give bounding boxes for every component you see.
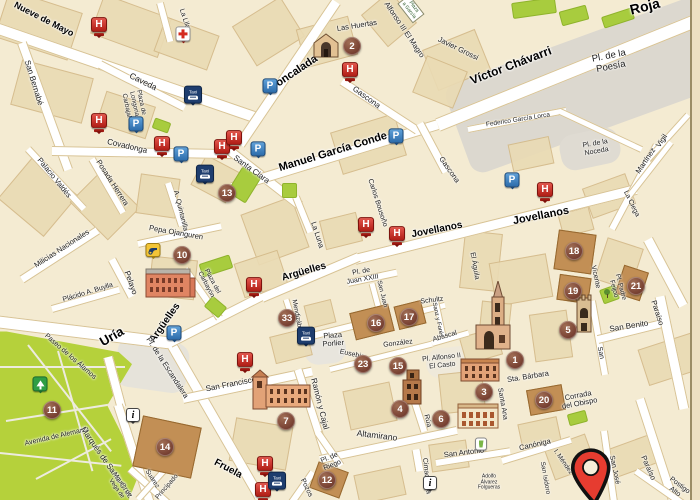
taxi-stand-marker-box: Taxi xyxy=(268,472,286,490)
hotel-marker[interactable]: H xyxy=(91,17,107,41)
poi-marker-1[interactable]: 1 xyxy=(506,351,524,369)
parking-marker[interactable]: P xyxy=(505,172,520,192)
hotel-marker[interactable]: H xyxy=(389,226,405,250)
poi-marker-12[interactable]: 12 xyxy=(318,471,336,489)
cider-glass-icon-box xyxy=(475,437,487,450)
glass-shape xyxy=(479,440,484,447)
parking-marker[interactable]: P xyxy=(167,325,182,345)
poi-marker-7[interactable]: 7 xyxy=(277,412,295,430)
parking-marker[interactable]: P xyxy=(263,78,278,98)
marker-pointer xyxy=(37,390,43,396)
parking-marker-box: P xyxy=(129,116,144,131)
street-label: Corrada del Obispo xyxy=(560,388,598,411)
building-block xyxy=(304,299,337,329)
info-point-icon-box: i xyxy=(126,408,140,422)
poi-marker-19[interactable]: 19 xyxy=(564,282,582,300)
park-path xyxy=(6,400,130,422)
street-label: Rúa xyxy=(422,414,433,428)
green-area xyxy=(282,183,297,198)
hotel-marker-box: H xyxy=(358,217,374,232)
hotel-marker-box: H xyxy=(226,130,242,145)
marker-pointer xyxy=(242,370,248,376)
poi-marker-23[interactable]: 23 xyxy=(354,355,372,373)
marker-pointer xyxy=(542,200,548,206)
taxi-stand-marker[interactable]: Taxi xyxy=(196,165,214,188)
hotel-marker[interactable]: H xyxy=(342,62,358,86)
taxi-label: Taxi xyxy=(201,169,209,174)
green-area xyxy=(152,117,172,133)
marker-pointer xyxy=(159,154,165,160)
marker-pointer xyxy=(150,256,156,262)
city-map: Nueve de MayoSan BernabéLa LilaCavedaPla… xyxy=(0,0,700,500)
taxi-label: Taxi xyxy=(273,476,281,481)
marker-pointer xyxy=(171,339,177,345)
marker-pointer xyxy=(267,92,273,98)
parking-marker-box: P xyxy=(174,146,189,161)
monastery-illustration xyxy=(249,369,313,418)
park-icon-box xyxy=(33,376,48,391)
tree-icon xyxy=(36,376,44,386)
poi-marker-14[interactable]: 14 xyxy=(156,438,174,456)
poi-marker-13[interactable]: 13 xyxy=(218,184,236,202)
poi-marker-18[interactable]: 18 xyxy=(565,242,583,260)
marker-pointer xyxy=(219,157,225,163)
car-icon xyxy=(188,96,198,100)
car-icon xyxy=(200,175,210,179)
parking-marker-box: P xyxy=(251,141,266,156)
street-label: Adolfo Álvarez Folgueras xyxy=(478,475,500,492)
poi-marker-5[interactable]: 5 xyxy=(559,321,577,339)
marker-pointer xyxy=(190,103,196,109)
marker-pointer xyxy=(251,295,257,301)
you-are-here-pin[interactable] xyxy=(566,446,618,500)
hotel-marker-box: H xyxy=(91,17,107,32)
hotel-marker[interactable]: H xyxy=(91,113,107,137)
poi-marker-20[interactable]: 20 xyxy=(535,391,553,409)
hotel-marker[interactable]: H xyxy=(246,277,262,301)
hotel-marker[interactable]: H xyxy=(358,217,374,241)
post-office-icon-box xyxy=(146,243,161,257)
taxi-stand-marker[interactable]: Taxi xyxy=(184,86,202,109)
taxi-stand-marker-box: Taxi xyxy=(297,327,315,345)
hotel-marker[interactable]: H xyxy=(537,182,553,206)
marker-pointer xyxy=(133,130,139,136)
palace-cream-illustration xyxy=(456,401,500,436)
parking-marker-box: P xyxy=(263,78,278,93)
marker-pointer xyxy=(274,489,280,495)
street-label: Plaza Porlier xyxy=(322,331,345,349)
hotel-marker-box: H xyxy=(342,62,358,77)
poi-marker-10[interactable]: 10 xyxy=(173,246,191,264)
hotel-marker-box: H xyxy=(257,456,273,471)
taxi-stand-marker-box: Taxi xyxy=(184,86,202,104)
street-label: Sta. Bárbara xyxy=(507,370,550,385)
green-area xyxy=(567,410,588,427)
green-area xyxy=(559,5,590,27)
marker-pointer xyxy=(393,142,399,148)
foncalada-fountain-illustration xyxy=(310,32,342,65)
marker-pointer xyxy=(509,186,515,192)
marker-pointer xyxy=(96,35,102,41)
hotel-marker-box: H xyxy=(537,182,553,197)
hotel-marker-box: H xyxy=(389,226,405,241)
hotel-marker-box: H xyxy=(246,277,262,292)
taxi-stand-marker[interactable]: Taxi xyxy=(268,472,286,495)
taxi-label: Taxi xyxy=(302,331,310,336)
parking-marker[interactable]: P xyxy=(251,141,266,161)
poi-marker-4[interactable]: 4 xyxy=(391,400,409,418)
car-icon xyxy=(272,482,282,486)
marker-pointer xyxy=(427,489,433,495)
marker-pointer xyxy=(178,160,184,166)
hotel-marker-box: H xyxy=(154,136,170,151)
red-cross-icon-box xyxy=(176,26,191,41)
marker-pointer xyxy=(363,235,369,241)
hotel-marker-box: H xyxy=(91,113,107,128)
poi-marker-33[interactable]: 33 xyxy=(278,309,296,327)
parking-marker[interactable]: P xyxy=(129,116,144,136)
poi-marker-3[interactable]: 3 xyxy=(475,383,493,401)
hotel-marker[interactable]: H xyxy=(226,130,242,154)
parking-marker[interactable]: P xyxy=(174,146,189,166)
poi-marker-6[interactable]: 6 xyxy=(432,410,450,428)
parking-marker-box: P xyxy=(505,172,520,187)
marker-pointer xyxy=(347,80,353,86)
park-icon[interactable] xyxy=(33,376,48,396)
small-tree-icon xyxy=(603,289,611,298)
marker-pointer xyxy=(96,131,102,137)
parking-marker[interactable]: P xyxy=(389,128,404,148)
poi-marker-15[interactable]: 15 xyxy=(389,357,407,375)
marker-pointer xyxy=(303,344,309,350)
marker-pointer xyxy=(255,155,261,161)
poi-marker-11[interactable]: 11 xyxy=(43,401,61,419)
taxi-stand-marker[interactable]: Taxi xyxy=(297,327,315,350)
marker-pointer xyxy=(394,244,400,250)
hotel-marker[interactable]: H xyxy=(237,352,253,376)
taxi-stand-marker-box: Taxi xyxy=(196,165,214,183)
poi-marker-21[interactable]: 21 xyxy=(627,277,645,295)
parking-marker-box: P xyxy=(167,325,182,340)
cider-glass-icon[interactable] xyxy=(475,437,487,450)
marker-pointer xyxy=(231,148,237,154)
building-block xyxy=(353,465,406,500)
parking-marker-box: P xyxy=(389,128,404,143)
marker-pointer xyxy=(130,421,136,427)
street-label: Altamirano xyxy=(356,429,397,443)
bugle-emblem xyxy=(148,245,159,255)
hotel-marker-box: H xyxy=(237,352,253,367)
info-point-icon[interactable]: i xyxy=(423,476,437,495)
map-frame-edge xyxy=(690,0,700,500)
building-block xyxy=(342,381,397,430)
poi-marker-17[interactable]: 17 xyxy=(400,308,418,326)
poi-marker-16[interactable]: 16 xyxy=(367,314,385,332)
poi-marker-2[interactable]: 2 xyxy=(343,37,361,55)
taxi-label: Taxi xyxy=(189,90,197,95)
green-area xyxy=(511,0,557,19)
car-icon xyxy=(301,337,311,341)
tree-trunk xyxy=(39,386,41,389)
info-point-icon-box: i xyxy=(423,476,437,490)
street-label: Plaza de Longoria Carbajal xyxy=(121,89,148,118)
marker-pointer xyxy=(202,182,208,188)
info-point-icon[interactable]: i xyxy=(126,408,140,427)
post-office-icon[interactable] xyxy=(146,243,161,262)
hotel-marker[interactable]: H xyxy=(154,136,170,160)
red-cross-icon[interactable] xyxy=(176,26,191,46)
theater-illustration xyxy=(144,264,196,307)
